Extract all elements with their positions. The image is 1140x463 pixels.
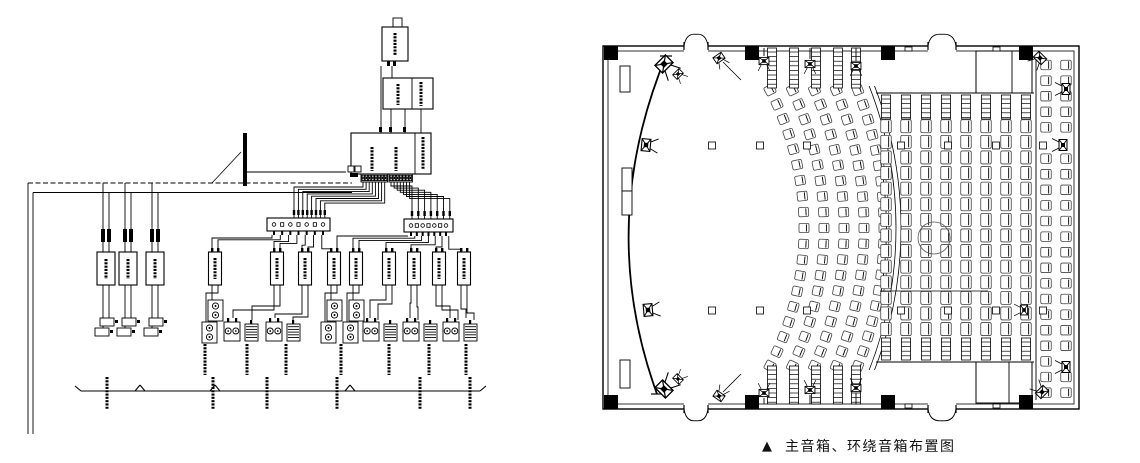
driver-dot — [328, 327, 330, 329]
seat — [814, 98, 827, 110]
seat — [841, 331, 853, 343]
seat-body — [941, 276, 952, 289]
coverage-line — [651, 138, 659, 143]
seat-body — [1041, 91, 1052, 101]
seat-body — [941, 151, 952, 164]
terminal-strip — [389, 174, 412, 182]
speaker-driver — [1064, 365, 1068, 369]
seat — [1021, 151, 1032, 164]
seat — [836, 345, 849, 357]
column-speaker — [343, 285, 364, 343]
seat — [1041, 263, 1052, 273]
speaker-leader-line — [723, 374, 741, 392]
seat — [1061, 185, 1072, 195]
column — [1019, 395, 1033, 409]
seat — [799, 223, 809, 232]
seat — [832, 160, 844, 171]
pin-tick — [422, 233, 424, 237]
stair-rails — [834, 366, 843, 404]
seat-body — [901, 276, 912, 289]
seat-body — [794, 175, 805, 186]
seat — [1001, 260, 1012, 273]
wall-panel — [622, 191, 632, 215]
seat-body — [981, 120, 992, 133]
seat — [841, 114, 853, 126]
speaker-box — [144, 328, 158, 336]
seat — [1061, 123, 1072, 132]
stairs — [1002, 338, 1011, 360]
stair-rails — [942, 95, 951, 119]
pin-tick — [436, 211, 438, 216]
seat — [787, 301, 799, 313]
stair-rails — [1002, 338, 1011, 360]
spk-wire — [293, 285, 308, 320]
seat — [981, 151, 992, 164]
column — [745, 46, 759, 60]
stairs — [812, 366, 821, 404]
seat-body — [881, 291, 892, 304]
seat — [921, 323, 932, 336]
seat-body — [981, 245, 992, 258]
seat — [1001, 323, 1012, 336]
seat — [793, 345, 806, 357]
seat — [941, 120, 952, 133]
seat-body — [1041, 263, 1052, 273]
seat-body — [921, 120, 932, 133]
wall-panel — [622, 168, 632, 191]
seat-body — [1061, 232, 1072, 242]
stair-rails — [922, 338, 931, 360]
speaker-driver — [762, 391, 766, 395]
seat — [804, 316, 816, 328]
seat-body — [1021, 135, 1032, 148]
seat — [961, 120, 972, 133]
seat-body — [797, 255, 808, 265]
seat — [1001, 307, 1012, 320]
seat — [858, 239, 868, 249]
amplifier — [383, 248, 396, 285]
pin-tick — [352, 248, 354, 252]
terminal-pin — [410, 177, 411, 180]
processor-box — [383, 78, 433, 109]
connector-block — [156, 229, 160, 242]
seat-body — [829, 301, 841, 312]
seat — [981, 245, 992, 258]
seat — [961, 260, 972, 273]
seat — [1021, 120, 1032, 133]
seat-body — [901, 120, 912, 133]
seat — [941, 245, 952, 258]
seat-body — [1061, 201, 1072, 211]
driver-dot — [235, 330, 237, 332]
tick — [137, 320, 140, 323]
driver-box — [403, 322, 419, 341]
seat-body — [1021, 291, 1032, 304]
driver-dot — [414, 330, 416, 332]
seat-body — [1061, 169, 1072, 179]
seat — [881, 245, 892, 258]
seat — [921, 135, 932, 148]
seat-body — [961, 323, 972, 336]
antenna — [393, 18, 402, 27]
wall-mark — [905, 47, 912, 51]
driver-dot — [269, 330, 271, 332]
seat — [1061, 107, 1072, 117]
seat-body — [853, 160, 864, 171]
pin-tick — [442, 211, 444, 216]
schematic-root — [28, 18, 486, 434]
seat — [820, 331, 832, 343]
column — [604, 395, 618, 409]
seat — [901, 323, 912, 336]
pin-tick — [273, 232, 275, 236]
speaker-icon — [672, 68, 688, 84]
stairs — [1022, 338, 1031, 360]
seat — [941, 182, 952, 195]
seat-body — [1041, 123, 1052, 132]
pin-tick — [366, 318, 368, 322]
stair-rails — [942, 338, 951, 360]
amplifier — [271, 248, 284, 285]
seat — [961, 229, 972, 242]
seat — [941, 276, 952, 289]
glyph-mark — [281, 223, 284, 227]
seat-body — [797, 191, 808, 201]
seat — [961, 198, 972, 211]
seat — [921, 260, 932, 273]
seat — [1021, 167, 1032, 180]
seat-body — [921, 291, 932, 304]
surround-amp-chain — [144, 183, 167, 336]
stair-rails — [882, 338, 891, 360]
stairs — [982, 95, 991, 119]
seat-body — [881, 182, 892, 195]
pin-tick — [211, 248, 213, 252]
seat — [961, 135, 972, 148]
stair-rails — [1022, 95, 1031, 119]
seat-body — [961, 291, 972, 304]
seat-body — [791, 159, 803, 170]
seat — [1021, 276, 1032, 289]
seat — [981, 167, 992, 180]
driver-dot — [366, 330, 368, 332]
terminal-pin — [369, 177, 370, 180]
spk-wire — [233, 285, 274, 318]
seat-body — [771, 345, 784, 358]
glyph-mark — [415, 224, 418, 228]
seat — [812, 159, 824, 170]
pin-tick — [293, 210, 295, 215]
seat — [881, 291, 892, 304]
pin-tick — [235, 318, 237, 322]
seat-body — [798, 113, 811, 125]
seat — [941, 260, 952, 273]
driver-dot — [446, 330, 448, 332]
driver-dot — [209, 327, 211, 329]
terminal-pin — [391, 177, 392, 180]
pin-tick — [389, 320, 391, 324]
seat-body — [961, 229, 972, 242]
seat — [981, 307, 992, 320]
seat-body — [921, 260, 932, 273]
seat-body — [858, 239, 868, 249]
seat — [1061, 310, 1072, 320]
seat-body — [1041, 325, 1052, 335]
driver-dot — [356, 314, 358, 316]
pin-tick — [306, 232, 308, 236]
seat — [791, 286, 803, 297]
seat — [981, 323, 992, 336]
seat-body — [921, 198, 932, 211]
amplifier — [408, 248, 421, 285]
pin-tick — [302, 210, 304, 215]
seat — [1041, 232, 1052, 242]
seat — [783, 128, 795, 140]
floor-box — [1040, 142, 1047, 149]
seat — [829, 144, 841, 155]
connector-tick — [350, 173, 358, 177]
stair-rails — [962, 338, 971, 360]
seat — [981, 135, 992, 148]
amplifier — [433, 248, 446, 285]
seat-body — [961, 276, 972, 289]
seat — [961, 167, 972, 180]
seat — [981, 120, 992, 133]
stairs — [962, 338, 971, 360]
seat-body — [1041, 372, 1052, 382]
floor-box — [709, 142, 716, 149]
seat — [1061, 294, 1072, 304]
seat-body — [901, 323, 912, 336]
seat — [862, 114, 874, 126]
grouping-tick — [480, 386, 486, 391]
seat — [798, 207, 808, 217]
seat — [881, 151, 892, 164]
floor-box — [898, 307, 905, 314]
wall-panel — [620, 360, 630, 388]
seat-body — [1021, 260, 1032, 273]
amp-feed-wire — [449, 236, 461, 252]
output-connector — [355, 166, 361, 172]
seat-body — [981, 291, 992, 304]
seat-body — [829, 144, 841, 155]
seat-body — [1041, 357, 1052, 367]
floor-box — [945, 307, 952, 314]
coverage-line — [758, 383, 761, 389]
seat-body — [836, 345, 849, 357]
seat — [881, 167, 892, 180]
floor-box — [804, 307, 811, 314]
seat — [817, 255, 828, 265]
seat-body — [961, 135, 972, 148]
pin-tick — [416, 233, 418, 237]
pin-tick — [416, 248, 418, 252]
seat — [981, 276, 992, 289]
seat — [1061, 169, 1072, 179]
seat — [921, 245, 932, 258]
seat-body — [777, 331, 790, 343]
seat — [961, 245, 972, 258]
seat-body — [1001, 167, 1012, 180]
pin-tick — [217, 248, 219, 252]
seat — [1041, 123, 1052, 132]
floor-box — [898, 142, 905, 149]
surround-amp-chain — [117, 183, 140, 336]
grouping-tick — [75, 386, 81, 391]
drawing-canvas: ▲ 主音箱、环绕音箱布置图 — [0, 0, 1140, 463]
seat-body — [836, 99, 849, 111]
mixer-box — [351, 133, 431, 174]
seat-body — [791, 286, 803, 297]
stair-rails — [982, 95, 991, 119]
fan-wire — [294, 182, 363, 218]
driver-dot — [350, 327, 352, 329]
seat-body — [961, 151, 972, 164]
seat — [941, 198, 952, 211]
seat-body — [1041, 107, 1052, 117]
seat — [771, 345, 784, 358]
pin-tick — [301, 248, 303, 252]
terminal-pin — [382, 177, 383, 180]
seat-body — [881, 213, 892, 226]
seat-body — [1001, 182, 1012, 195]
terminal-pin — [394, 177, 395, 180]
spk-wire — [467, 285, 474, 320]
seat — [901, 182, 912, 195]
seat — [881, 276, 892, 289]
terminal-pin — [385, 177, 386, 180]
floor-box — [1040, 307, 1047, 314]
seat-body — [1041, 201, 1052, 211]
grouping-tick — [215, 385, 220, 391]
seat-body — [941, 120, 952, 133]
floor-box — [757, 307, 764, 314]
pin-tick — [279, 248, 281, 252]
seat-body — [849, 300, 861, 311]
seat-body — [787, 301, 799, 313]
seat — [901, 198, 912, 211]
seat — [839, 223, 849, 232]
speaker-icon — [672, 369, 688, 385]
seat-body — [901, 291, 912, 304]
seat-body — [818, 207, 828, 217]
seat — [857, 345, 869, 357]
seat — [812, 286, 824, 297]
seat-body — [1061, 388, 1072, 398]
speaker-pair — [443, 318, 477, 341]
seat — [1061, 341, 1072, 351]
seat — [1061, 372, 1072, 382]
seat — [777, 331, 790, 343]
driver-dot — [328, 336, 330, 338]
seat — [829, 301, 841, 312]
terminal-pin — [379, 177, 380, 180]
seat-body — [1021, 276, 1032, 289]
seat — [921, 182, 932, 195]
seat — [837, 191, 848, 201]
seat — [1061, 201, 1072, 211]
seat — [866, 316, 878, 327]
seat-body — [798, 331, 811, 343]
speaker-layout-floorplan — [570, 0, 1140, 463]
connector-block — [150, 229, 154, 242]
seat-body — [1001, 229, 1012, 242]
seat — [794, 175, 805, 186]
seat-body — [1001, 260, 1012, 273]
seat — [771, 98, 784, 111]
seat — [1001, 229, 1012, 242]
stair-rails — [1022, 338, 1031, 360]
seat-body — [771, 98, 784, 111]
terminal-pin — [366, 177, 367, 180]
driver-box — [224, 322, 240, 341]
stairs — [922, 338, 931, 360]
seat — [941, 167, 952, 180]
seat — [797, 255, 808, 265]
seat-body — [961, 198, 972, 211]
seat-body — [941, 291, 952, 304]
seat — [815, 175, 826, 186]
seat-body — [1041, 341, 1052, 351]
seat — [832, 285, 844, 296]
pin-tick — [281, 232, 283, 236]
seat — [961, 276, 972, 289]
stairs — [942, 95, 951, 119]
seat-body — [849, 144, 861, 155]
seat-body — [835, 270, 846, 281]
seat-body — [1021, 213, 1032, 226]
seat — [1021, 291, 1032, 304]
screen-arc — [629, 56, 666, 394]
seat — [981, 213, 992, 226]
seat-body — [855, 270, 866, 280]
seat-body — [961, 167, 972, 180]
amplifier — [209, 248, 222, 285]
seat-body — [881, 229, 892, 242]
stairs — [768, 48, 777, 88]
pin-tick — [411, 211, 413, 216]
amplifier-box — [97, 252, 115, 285]
pin-tick — [446, 318, 448, 322]
seat — [921, 151, 932, 164]
seat-body — [1021, 229, 1032, 242]
seat — [881, 229, 892, 242]
seat — [836, 99, 849, 111]
distribution-box — [267, 218, 330, 235]
seat-back — [865, 256, 866, 263]
seat — [901, 245, 912, 258]
speaker-icon — [641, 137, 659, 153]
column — [881, 395, 895, 409]
glyph-mark — [439, 224, 442, 228]
seat — [1021, 229, 1032, 242]
seat-body — [1001, 291, 1012, 304]
terminal-pin — [372, 177, 373, 180]
stairs — [902, 338, 911, 360]
connector-block — [129, 229, 133, 242]
seat-body — [921, 135, 932, 148]
connector-tick — [403, 127, 406, 132]
seat — [814, 345, 827, 357]
seat — [921, 167, 932, 180]
speaker-icon — [712, 385, 729, 403]
coverage-line — [804, 380, 807, 386]
seat-body — [846, 316, 858, 327]
seat-body — [837, 191, 848, 201]
amplifier-box — [146, 252, 164, 285]
seat — [1041, 341, 1052, 351]
seat-body — [881, 167, 892, 180]
